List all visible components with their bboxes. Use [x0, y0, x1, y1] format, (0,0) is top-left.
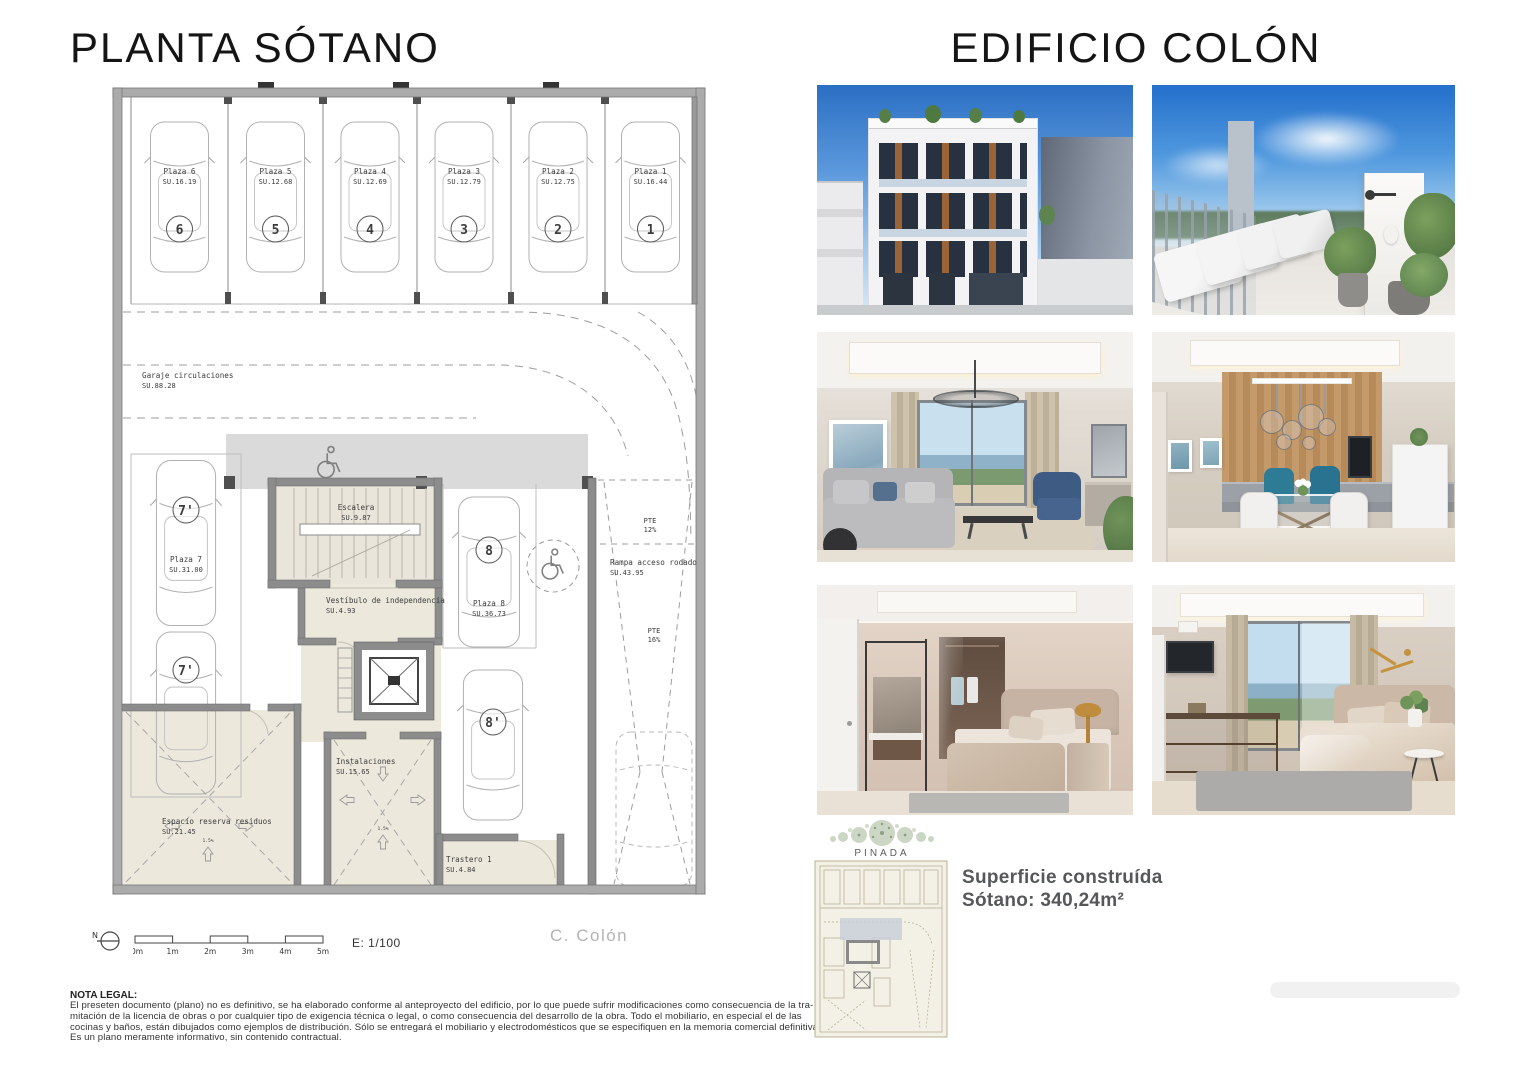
svg-text:6: 6 [176, 223, 184, 238]
svg-text:SU.21.45: SU.21.45 [162, 828, 196, 836]
shower-head-icon [1365, 190, 1375, 200]
cloud [1252, 111, 1402, 167]
floor [817, 550, 1133, 562]
svg-text:Plaza 1: Plaza 1 [634, 167, 666, 176]
svg-text:SU.12.79: SU.12.79 [447, 178, 481, 186]
neighbor-wall-left [817, 181, 863, 315]
built-area-line1: Superficie construída [962, 866, 1163, 889]
roof-plant [879, 109, 891, 123]
pendant-lamp [933, 390, 1019, 408]
svg-text:5: 5 [272, 223, 280, 238]
svg-text:8': 8' [485, 716, 501, 731]
window-band-2 [879, 193, 1027, 229]
svg-text:PTE: PTE [644, 517, 657, 525]
svg-text:N: N [92, 931, 98, 940]
svg-text:1.5%: 1.5% [202, 838, 213, 844]
basement-floor-plan: 1.5% 1.5% Plaza 6 SU.16.19 6 Plaza 5 SU.… [98, 82, 723, 902]
white-door [1152, 635, 1166, 781]
chandelier-bubble [1260, 410, 1284, 434]
svg-text:8: 8 [485, 544, 493, 559]
brochure-page: PLANTA SÓTANO [0, 0, 1527, 1080]
vase [1408, 709, 1422, 727]
svg-text:16%: 16% [648, 636, 661, 644]
doorway-left [1152, 392, 1168, 562]
window-band-3 [879, 241, 1027, 277]
door-handle [847, 721, 852, 726]
svg-text:7': 7' [178, 664, 194, 679]
coffee-table [963, 516, 1033, 523]
pinada-ornament-icon [812, 818, 952, 850]
photo-grid [817, 85, 1455, 815]
ramp-lines [598, 480, 696, 884]
photo-rooftop-terrace [1152, 85, 1455, 315]
svg-text:Plaza 8: Plaza 8 [473, 599, 505, 608]
north-compass-icon: N [90, 926, 124, 956]
vanity-cabinet [873, 740, 921, 760]
wall-tv [1166, 641, 1214, 673]
svg-text:0m: 0m [133, 947, 143, 956]
photo-dining-kitchen [1152, 332, 1455, 562]
roof-plant [1013, 110, 1025, 123]
vent [1178, 621, 1198, 633]
svg-text:4m: 4m [279, 947, 291, 956]
white-door [817, 619, 859, 815]
svg-text:1m: 1m [167, 947, 179, 956]
svg-text:4: 4 [366, 223, 374, 238]
stall-dividers [131, 97, 696, 304]
photo-bedroom-dressing [817, 585, 1133, 815]
street-ground [817, 305, 1133, 315]
plant [1324, 227, 1376, 279]
wall-mirror [1091, 424, 1127, 478]
svg-text:3: 3 [460, 223, 468, 238]
scale-ratio: E: 1/100 [352, 936, 401, 950]
window-band-1 [879, 143, 1027, 179]
accessible-circle [527, 540, 579, 592]
rug [909, 793, 1069, 813]
cloud [1162, 145, 1272, 185]
light-bar [1252, 378, 1352, 384]
svg-text:Trastero 1: Trastero 1 [446, 855, 492, 864]
svg-text:12%: 12% [644, 526, 657, 534]
svg-text:SU.9.87: SU.9.87 [341, 514, 371, 522]
svg-text:SU.36.73: SU.36.73 [472, 610, 506, 618]
svg-text:2: 2 [554, 223, 562, 238]
trastero-floor [441, 840, 558, 888]
glass-partition [865, 643, 867, 797]
plant [1404, 193, 1455, 259]
mini-floor-plan [814, 860, 948, 1038]
legal-note: NOTA LEGAL: El preseten documento (plano… [70, 990, 830, 1044]
svg-text:5m: 5m [317, 947, 329, 956]
photo-bedroom-seaview [1152, 585, 1455, 815]
svg-text:7': 7' [178, 504, 194, 519]
pillow [1008, 715, 1044, 740]
svg-text:2m: 2m [204, 947, 216, 956]
console-frame [1154, 719, 1278, 773]
wall-art [1168, 440, 1192, 472]
svg-text:Plaza 7: Plaza 7 [170, 555, 202, 564]
svg-text:Garaje circulaciones: Garaje circulaciones [142, 371, 233, 380]
built-area-line2: Sótano: 340,24m² [962, 889, 1163, 912]
svg-text:Plaza 2: Plaza 2 [542, 167, 574, 176]
orchid-centerpiece [1292, 478, 1314, 496]
photo-building-facade [817, 85, 1133, 315]
svg-text:Plaza 6: Plaza 6 [163, 167, 195, 176]
navy-pillow [873, 482, 897, 501]
svg-text:SU.31.00: SU.31.00 [169, 566, 203, 574]
console-box [1188, 703, 1206, 713]
svg-text:Plaza 5: Plaza 5 [259, 167, 291, 176]
svg-text:SU.16.44: SU.16.44 [634, 178, 668, 186]
ceiling-cove [1190, 340, 1400, 366]
svg-text:Rampa acceso rodado: Rampa acceso rodado [610, 558, 697, 567]
svg-text:Instalaciones: Instalaciones [336, 757, 395, 766]
svg-text:SU.12.69: SU.12.69 [353, 178, 387, 186]
svg-text:Escalera: Escalera [338, 503, 375, 512]
svg-text:1.5%: 1.5% [377, 826, 388, 832]
photo-living-room [817, 332, 1133, 562]
svg-text:SU.15.65: SU.15.65 [336, 768, 370, 776]
ghost-car [616, 732, 692, 887]
svg-text:SU.12.68: SU.12.68 [259, 178, 293, 186]
orchid-plant [1410, 428, 1428, 446]
svg-text:SU.4.93: SU.4.93 [326, 607, 356, 615]
chandelier-bubble [1302, 436, 1316, 450]
svg-text:SU.16.19: SU.16.19 [163, 178, 197, 186]
scale-bar: 0m 1m 2m 3m 4m 5m [133, 932, 343, 958]
svg-text:Plaza 4: Plaza 4 [354, 167, 386, 176]
wall-art [1200, 438, 1222, 468]
main-building [869, 119, 1037, 315]
svg-text:Espacio reserva residuos: Espacio reserva residuos [162, 817, 272, 826]
svg-text:SU.12.75: SU.12.75 [541, 178, 575, 186]
building-title: EDIFICIO COLÓN [817, 24, 1455, 72]
ramp-wall [588, 478, 596, 894]
plan-title: PLANTA SÓTANO [70, 24, 440, 72]
floor [1152, 528, 1455, 562]
ceiling-cove [877, 591, 1077, 613]
svg-text:1: 1 [647, 223, 655, 238]
vanity-top [869, 733, 923, 740]
svg-text:Plaza 3: Plaza 3 [448, 167, 480, 176]
hanging-garment [967, 677, 978, 703]
plant [1400, 253, 1448, 297]
svg-text:PTE: PTE [648, 627, 661, 635]
side-table-top [1404, 749, 1444, 758]
watermark-pill [1270, 982, 1460, 998]
svg-text:SU.4.84: SU.4.84 [446, 866, 476, 874]
built-in-oven [1348, 436, 1372, 478]
ceiling-cove [1180, 593, 1424, 617]
rug [1196, 771, 1412, 811]
glass-partition [925, 639, 927, 799]
svg-text:SU.43.95: SU.43.95 [610, 569, 644, 577]
roof-plant [925, 105, 941, 123]
chandelier-bubble [1318, 418, 1336, 436]
svg-text:3m: 3m [242, 947, 254, 956]
built-area-summary: Superficie construída Sótano: 340,24m² [962, 866, 1163, 912]
bath-mirror [873, 677, 921, 735]
planter-pot [1338, 273, 1368, 307]
svg-text:Vestíbulo de independencia: Vestíbulo de independencia [326, 596, 445, 605]
svg-text:SU.88.28: SU.88.28 [142, 382, 176, 390]
street-label: C. Colón [550, 926, 628, 946]
roof-plant [969, 108, 982, 123]
elevator [338, 642, 434, 720]
chandelier-bubble [1276, 434, 1292, 450]
brand-name: PINADA [812, 848, 952, 859]
